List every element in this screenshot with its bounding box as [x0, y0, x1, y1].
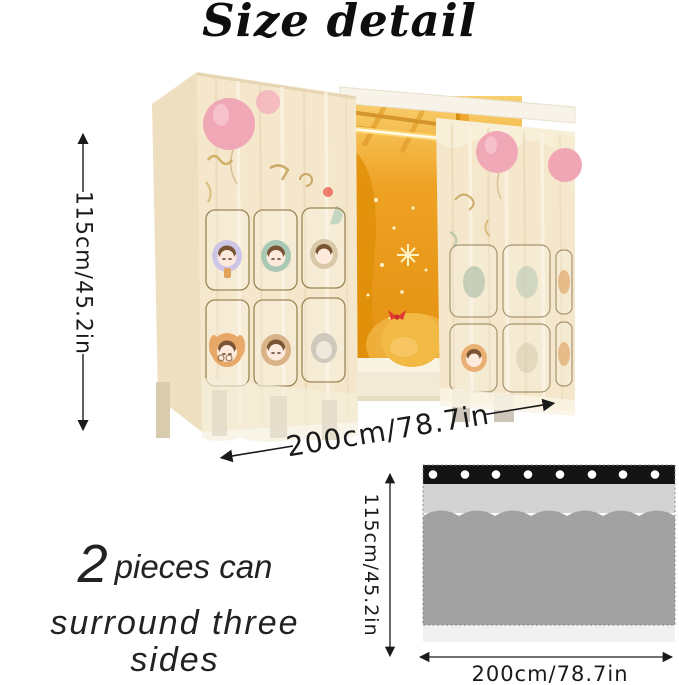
page-title: Size detail	[0, 0, 679, 47]
cartoon-kid	[310, 239, 338, 269]
diagram-height-label: 115cm/45.2in	[360, 493, 382, 636]
photo-height-label: 115cm/45.2in	[71, 191, 96, 355]
note-line-1: 2pieces can	[10, 528, 340, 601]
note-line-2: surround three sides	[10, 605, 340, 680]
note-line1-text: pieces can	[115, 548, 273, 585]
note-count: 2	[78, 534, 108, 594]
bubble-tea-icon	[224, 268, 231, 278]
left-curtain-panel	[152, 72, 358, 442]
width-arrow-right-icon	[485, 403, 554, 414]
photo-height-dimension: 115cm/45.2in	[55, 125, 115, 440]
bed-curtain-photo	[150, 60, 575, 450]
strawberry-icon	[323, 187, 333, 197]
pieces-note: 2pieces can surround three sides	[10, 528, 340, 680]
curtain-panel-illustration	[423, 465, 675, 642]
cartoon-kid	[261, 334, 291, 366]
cartoon-kid	[311, 333, 337, 363]
right-curtain-panel	[436, 118, 582, 422]
cartoon-kid	[261, 240, 291, 272]
panel-header-band	[423, 483, 675, 513]
curtain-side-face	[152, 72, 202, 432]
bow-icon	[394, 314, 399, 319]
diagram-width-label: 200cm/78.7in	[471, 662, 628, 685]
width-arrow-left-icon	[221, 446, 293, 458]
size-detail-infographic: Size detail	[0, 0, 679, 685]
panel-hem	[423, 625, 675, 642]
curtain-panel-diagram: 115cm/45.2in 200cm/78.7in	[350, 450, 679, 685]
